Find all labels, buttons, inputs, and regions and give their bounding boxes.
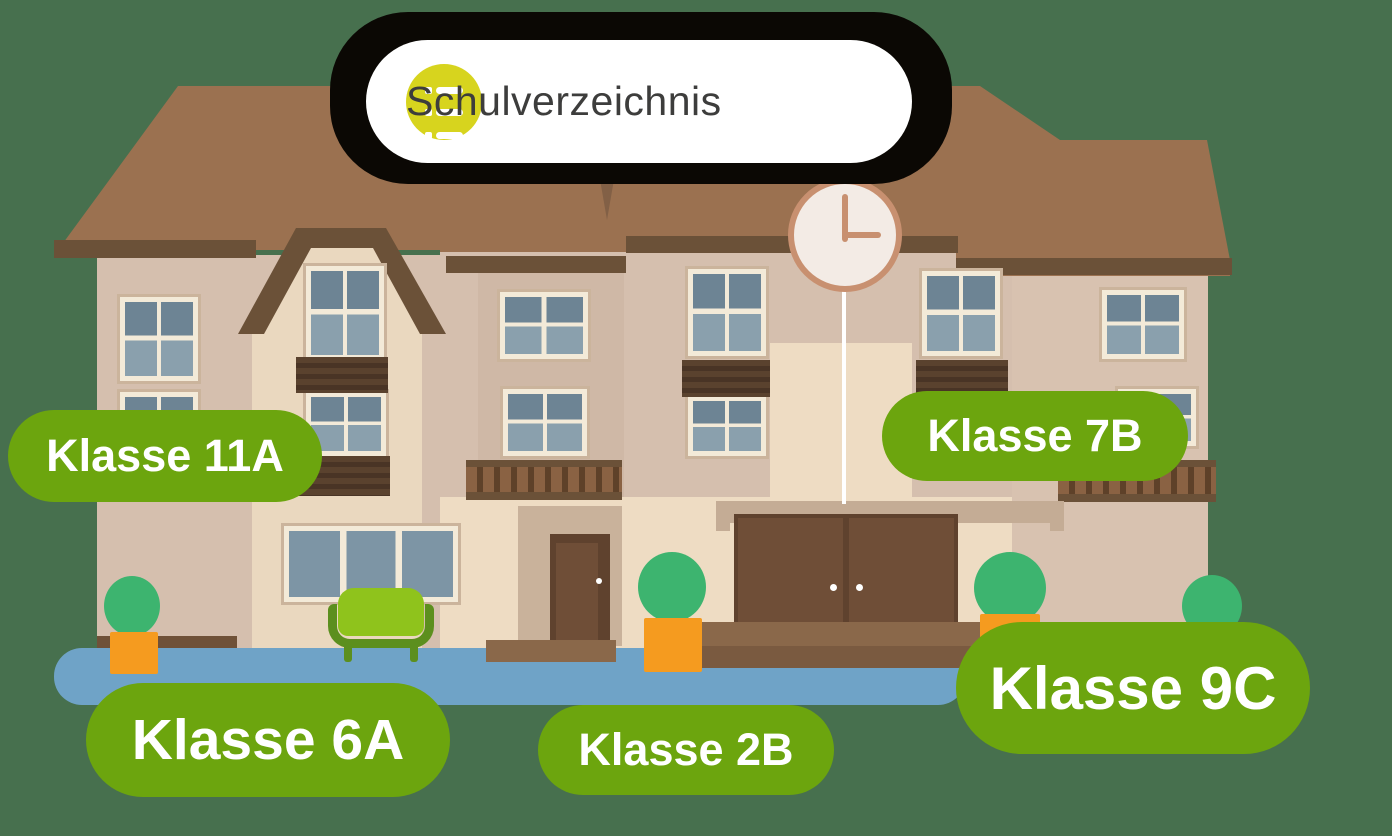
clock-hour-hand: [845, 232, 881, 238]
class-label-7b[interactable]: Klasse 7B: [882, 391, 1188, 481]
couch-leg: [410, 646, 418, 662]
louver-panel: [296, 357, 388, 393]
tree-pot: [644, 618, 702, 672]
window: [120, 297, 198, 381]
page-title: Schulverzeichnis: [406, 78, 722, 125]
class-label-6a[interactable]: Klasse 6A: [86, 683, 450, 797]
door-handle: [596, 578, 602, 584]
class-label-text: Klasse 2B: [578, 724, 793, 776]
entrance-door-right: [849, 518, 954, 632]
class-label-2b[interactable]: Klasse 2B: [538, 705, 834, 795]
header-pill: Schulverzeichnis: [366, 40, 912, 163]
window: [688, 269, 766, 356]
entrance-lintel-post: [716, 501, 730, 531]
entrance-lintel-post: [1050, 501, 1064, 531]
clock: [788, 178, 902, 292]
couch-cushion: [338, 588, 424, 636]
tree-pot: [110, 632, 158, 674]
window: [306, 266, 384, 360]
couch: [328, 588, 434, 664]
clock-line: [842, 290, 846, 504]
tree-crown: [638, 552, 706, 622]
class-label-9c[interactable]: Klasse 9C: [956, 622, 1310, 754]
window: [688, 396, 766, 456]
window: [1102, 290, 1184, 359]
class-label-text: Klasse 6A: [132, 707, 405, 773]
window: [922, 271, 1000, 356]
bay-eave-trim: [446, 256, 626, 273]
window: [503, 389, 587, 456]
class-label-text: Klasse 11A: [46, 430, 284, 482]
side-door-step: [486, 640, 616, 662]
side-door-panel: [556, 543, 598, 642]
louver-panel: [682, 360, 770, 397]
class-label-text: Klasse 7B: [927, 410, 1142, 462]
class-label-11a[interactable]: Klasse 11A: [8, 410, 322, 502]
door-handle: [830, 584, 837, 591]
couch-leg: [344, 646, 352, 662]
window: [500, 292, 588, 359]
entrance-door-left: [738, 518, 843, 632]
balcony-railing: [466, 460, 622, 500]
class-label-text: Klasse 9C: [990, 654, 1277, 723]
left-eave-trim: [54, 240, 256, 258]
door-handle: [856, 584, 863, 591]
tree-crown: [104, 576, 160, 636]
school-directory-screen: Schulverzeichnis Klasse 11A Klasse 7B Kl…: [0, 0, 1392, 836]
